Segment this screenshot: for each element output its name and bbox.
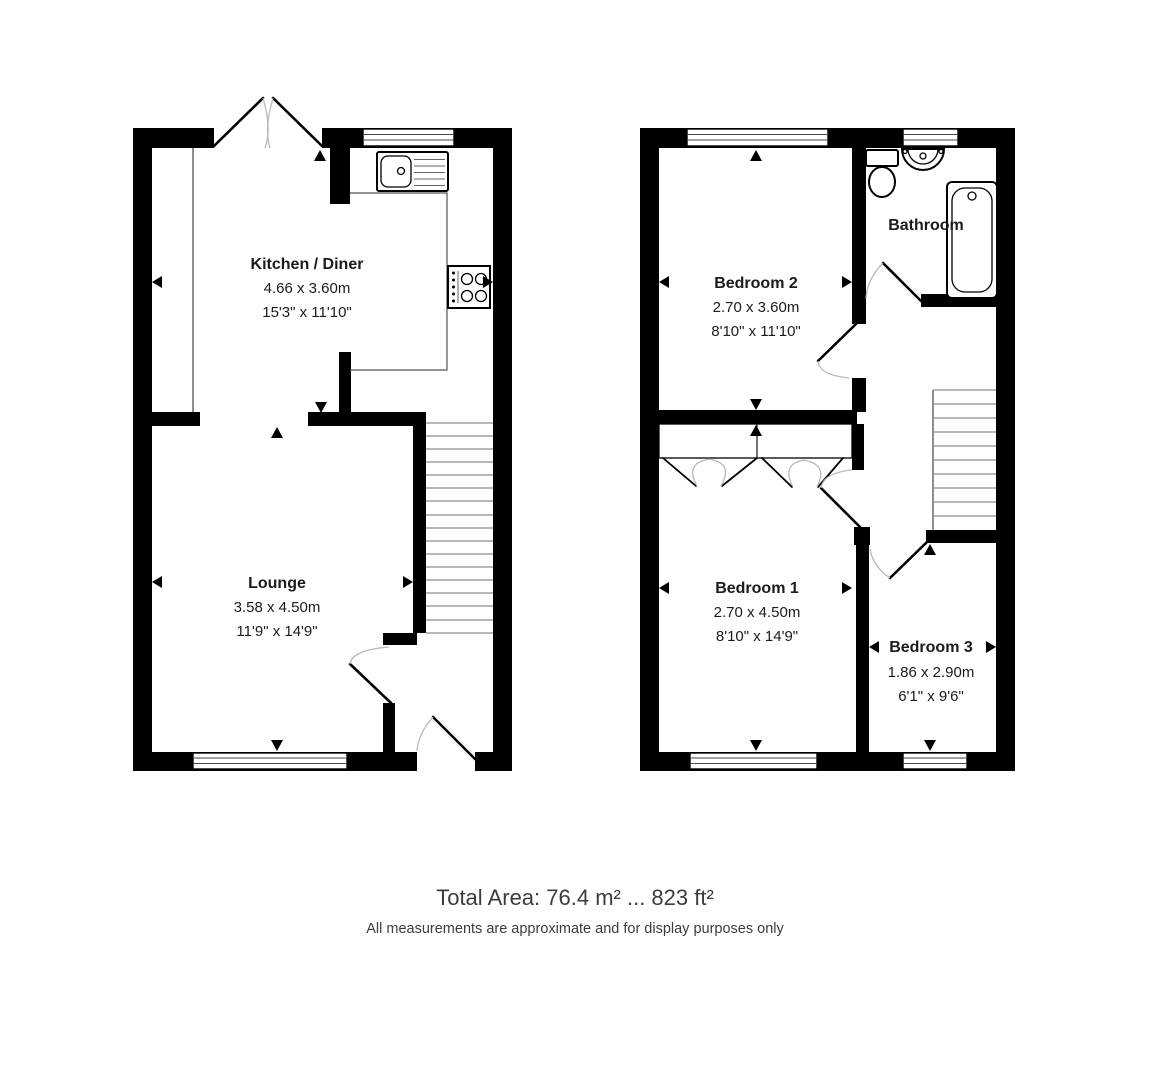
bedroom1-window (690, 753, 817, 769)
kitchen-window-top (363, 129, 454, 146)
bedroom1-size-metric: 2.70 x 4.50m (714, 604, 801, 621)
bedroom3-size-metric: 1.86 x 2.90m (888, 664, 975, 681)
lounge-size-metric: 3.58 x 4.50m (234, 599, 321, 616)
french-doors-icon (214, 98, 322, 148)
bedroom3-size-imperial: 6'1" x 9'6" (898, 688, 964, 705)
disclaimer-text: All measurements are approximate and for… (366, 921, 784, 937)
bedroom2-name: Bedroom 2 (714, 275, 798, 292)
bifold-doors-icon (663, 458, 843, 487)
first-floor-stairs (933, 390, 996, 530)
bedroom3-door-icon (870, 542, 927, 578)
bedroom2-size-imperial: 8'10" x 11'10" (711, 323, 801, 340)
bedroom2-size-metric: 2.70 x 3.60m (713, 299, 800, 316)
first-floor-plan: Bedroom 2 2.70 x 3.60m 8'10" x 11'10" Ba… (640, 128, 1015, 771)
lounge-hall-door-icon (350, 647, 391, 703)
bathroom-door-icon (866, 263, 921, 301)
ground-floor-plan: Kitchen / Diner 4.66 x 3.60m 15'3" x 11'… (133, 98, 512, 771)
bedroom3-name: Bedroom 3 (889, 639, 973, 656)
lounge-window-bottom (193, 753, 347, 769)
kitchen-size-imperial: 15'3" x 11'10" (262, 304, 352, 321)
bedroom2-window (687, 129, 828, 146)
lounge-name: Lounge (248, 575, 306, 592)
bathroom-name: Bathroom (888, 217, 964, 234)
bedroom1-door-icon (821, 470, 860, 527)
bathroom-window (903, 129, 958, 146)
ground-stairs (426, 423, 493, 633)
bedroom3-window (903, 753, 967, 769)
bedroom1-name: Bedroom 1 (715, 580, 799, 597)
toilet-icon (866, 150, 898, 197)
floorplan-canvas: Kitchen / Diner 4.66 x 3.60m 15'3" x 11'… (0, 0, 1150, 1080)
front-door-icon (417, 717, 475, 759)
bedroom2-door-icon (818, 324, 856, 378)
total-area-text: Total Area: 76.4 m² ... 823 ft² (436, 885, 714, 910)
footer: Total Area: 76.4 m² ... 823 ft² All meas… (366, 885, 784, 937)
kitchen-name: Kitchen / Diner (251, 256, 364, 273)
kitchen-counter-outline (350, 193, 447, 370)
kitchen-size-metric: 4.66 x 3.60m (264, 280, 351, 297)
basin-icon (902, 149, 944, 170)
bedroom1-size-imperial: 8'10" x 14'9" (716, 628, 798, 645)
kitchen-sink-icon (377, 152, 448, 191)
bathtub-icon (947, 182, 997, 298)
lounge-size-imperial: 11'9" x 14'9" (236, 623, 317, 640)
